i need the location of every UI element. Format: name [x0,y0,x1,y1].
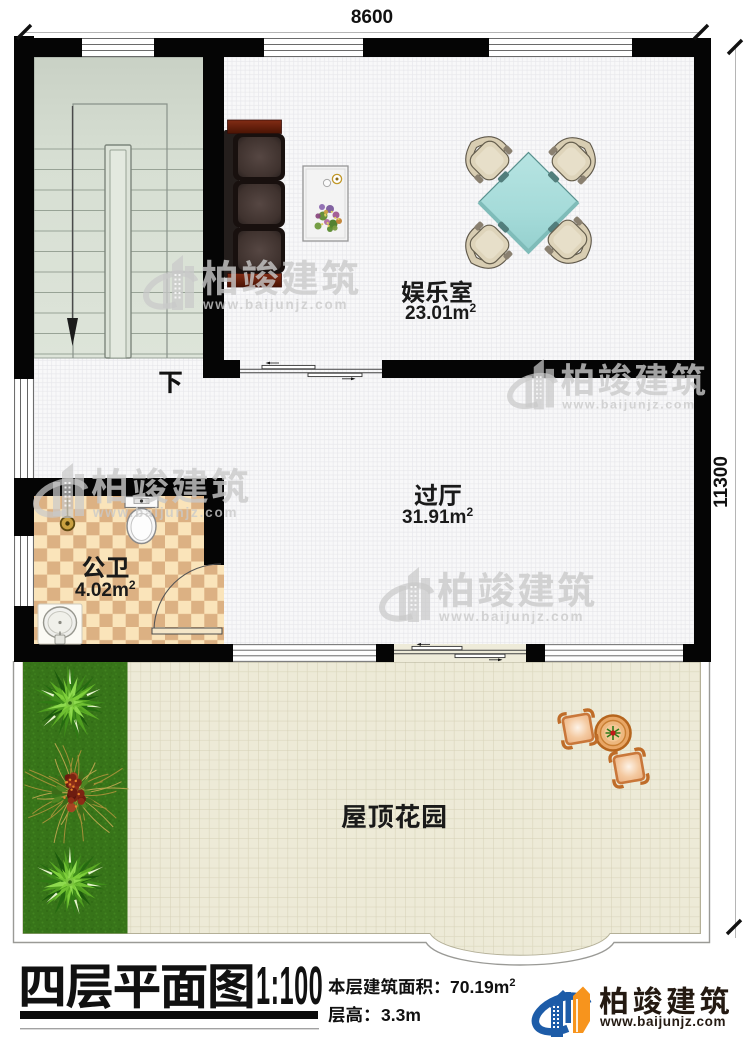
svg-text:www.baijunjz.com: www.baijunjz.com [438,609,584,624]
svg-text:23.01m2: 23.01m2 [405,301,476,324]
svg-text:4.02m2: 4.02m2 [75,578,136,601]
svg-text:www.baijunjz.com: www.baijunjz.com [599,1014,726,1029]
svg-text:8600: 8600 [351,7,393,28]
svg-text:31.91m2: 31.91m2 [402,505,473,528]
svg-text:11300: 11300 [711,456,732,508]
svg-text:70.19m2: 70.19m2 [450,977,515,997]
svg-text:www.baijunjz.com: www.baijunjz.com [92,505,238,520]
svg-text:3.3m: 3.3m [381,1005,421,1025]
svg-text:1:100: 1:100 [256,955,323,1015]
svg-text:www.baijunjz.com: www.baijunjz.com [202,297,348,312]
svg-text:www.baijunjz.com: www.baijunjz.com [561,397,696,411]
